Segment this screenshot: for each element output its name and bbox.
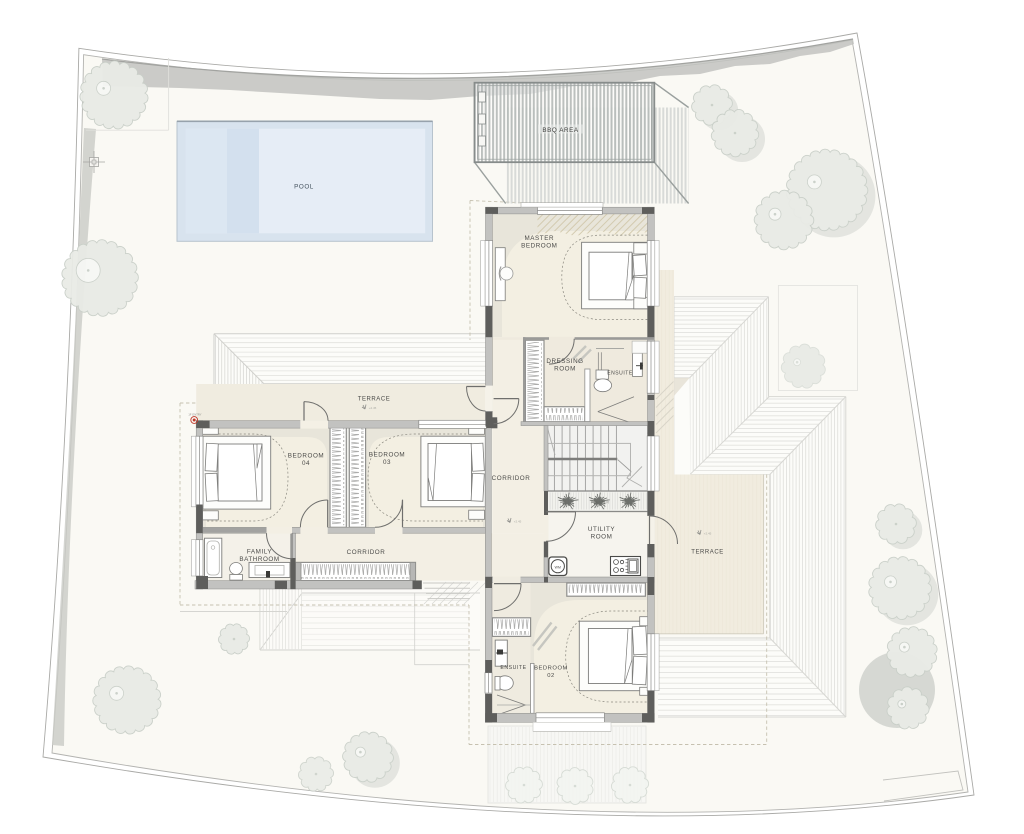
svg-text:1F ENTRY: 1F ENTRY [188,413,201,417]
svg-text:FAMILY: FAMILY [247,549,272,556]
svg-text:ENSUITE: ENSUITE [607,371,633,377]
svg-text:CORRIDOR: CORRIDOR [492,475,531,482]
svg-text:POOL: POOL [294,184,314,191]
svg-text:DRESSING: DRESSING [546,358,583,365]
svg-text:TERRACE: TERRACE [691,550,724,556]
svg-text:BEDROOM: BEDROOM [369,452,405,459]
svg-text:BATHROOM: BATHROOM [239,556,279,563]
svg-text:TERRACE: TERRACE [358,397,391,403]
svg-text:02: 02 [547,673,555,679]
svg-text:CORRIDOR: CORRIDOR [347,549,386,556]
svg-text:ENSUITE: ENSUITE [500,665,526,671]
svg-text:ROOM: ROOM [554,366,576,373]
svg-text:BEDROOM: BEDROOM [288,453,324,460]
svg-text:04: 04 [302,460,310,467]
svg-text:WM: WM [555,565,561,569]
svg-text:BBQ AREA: BBQ AREA [542,127,578,134]
svg-text:ROOM: ROOM [591,534,613,541]
svg-text:03: 03 [383,459,391,466]
svg-text:UTILITY: UTILITY [588,526,616,533]
svg-text:MASTER: MASTER [525,235,555,242]
svg-text:BEDROOM: BEDROOM [534,666,568,672]
svg-text:+2.45: +2.45 [369,406,377,410]
svg-text:+2.45: +2.45 [704,532,712,536]
svg-text:BEDROOM: BEDROOM [521,243,557,250]
svg-text:+2.45: +2.45 [514,520,522,524]
